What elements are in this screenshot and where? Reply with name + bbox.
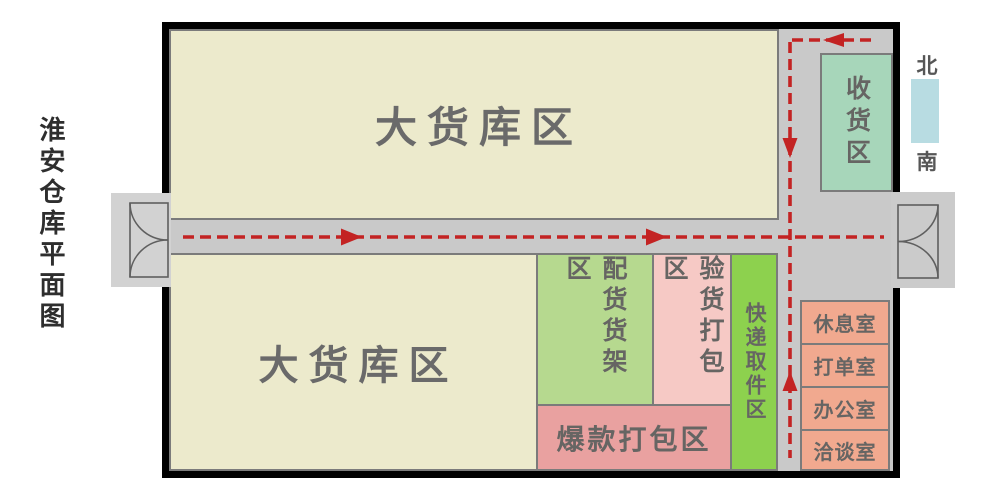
room-office: 办公室 (800, 386, 890, 431)
room-office-label: 办公室 (814, 394, 877, 423)
zone-receiving: 收货区 (820, 53, 893, 192)
room-rest-label: 休息室 (814, 308, 877, 337)
zone-top-warehouse-label: 大货库区 (365, 94, 583, 155)
plan-title: 淮安仓库平面图 (36, 116, 66, 333)
warehouse-floor-plan: 淮安仓库平面图 大货库区 大货库区 配货货架区 验货打包区 快递取件区 爆款打包… (0, 0, 1000, 500)
room-order-printing-label: 打单室 (814, 351, 877, 380)
compass-south-label: 南 (905, 146, 949, 176)
zone-picking-shelf-label: 配货货架区 (559, 255, 631, 404)
zone-top-warehouse: 大货库区 (169, 29, 779, 220)
room-meeting-label: 洽谈室 (814, 436, 877, 465)
zone-bottom-warehouse-label: 大货库区 (249, 333, 459, 391)
compass-north-label: 北 (905, 50, 949, 80)
north-south-bar (911, 79, 939, 143)
zone-express-pickup: 快递取件区 (730, 253, 778, 471)
left-entrance-vestibule (111, 193, 171, 287)
room-rest: 休息室 (800, 300, 890, 345)
zone-receiving-label: 收货区 (839, 75, 875, 171)
zone-inspection-pack-label: 验货打包区 (656, 255, 728, 404)
right-entrance-vestibule (891, 192, 955, 288)
zone-hot-item-pack-label: 爆款打包区 (556, 418, 711, 458)
room-order-printing: 打单室 (800, 343, 890, 388)
room-meeting: 洽谈室 (800, 429, 890, 471)
zone-inspection-pack: 验货打包区 (652, 253, 732, 406)
zone-express-pickup-label: 快递取件区 (739, 302, 769, 422)
zone-picking-shelf: 配货货架区 (536, 253, 654, 406)
zone-hot-item-pack: 爆款打包区 (536, 404, 732, 471)
zone-bottom-warehouse: 大货库区 (169, 253, 538, 471)
